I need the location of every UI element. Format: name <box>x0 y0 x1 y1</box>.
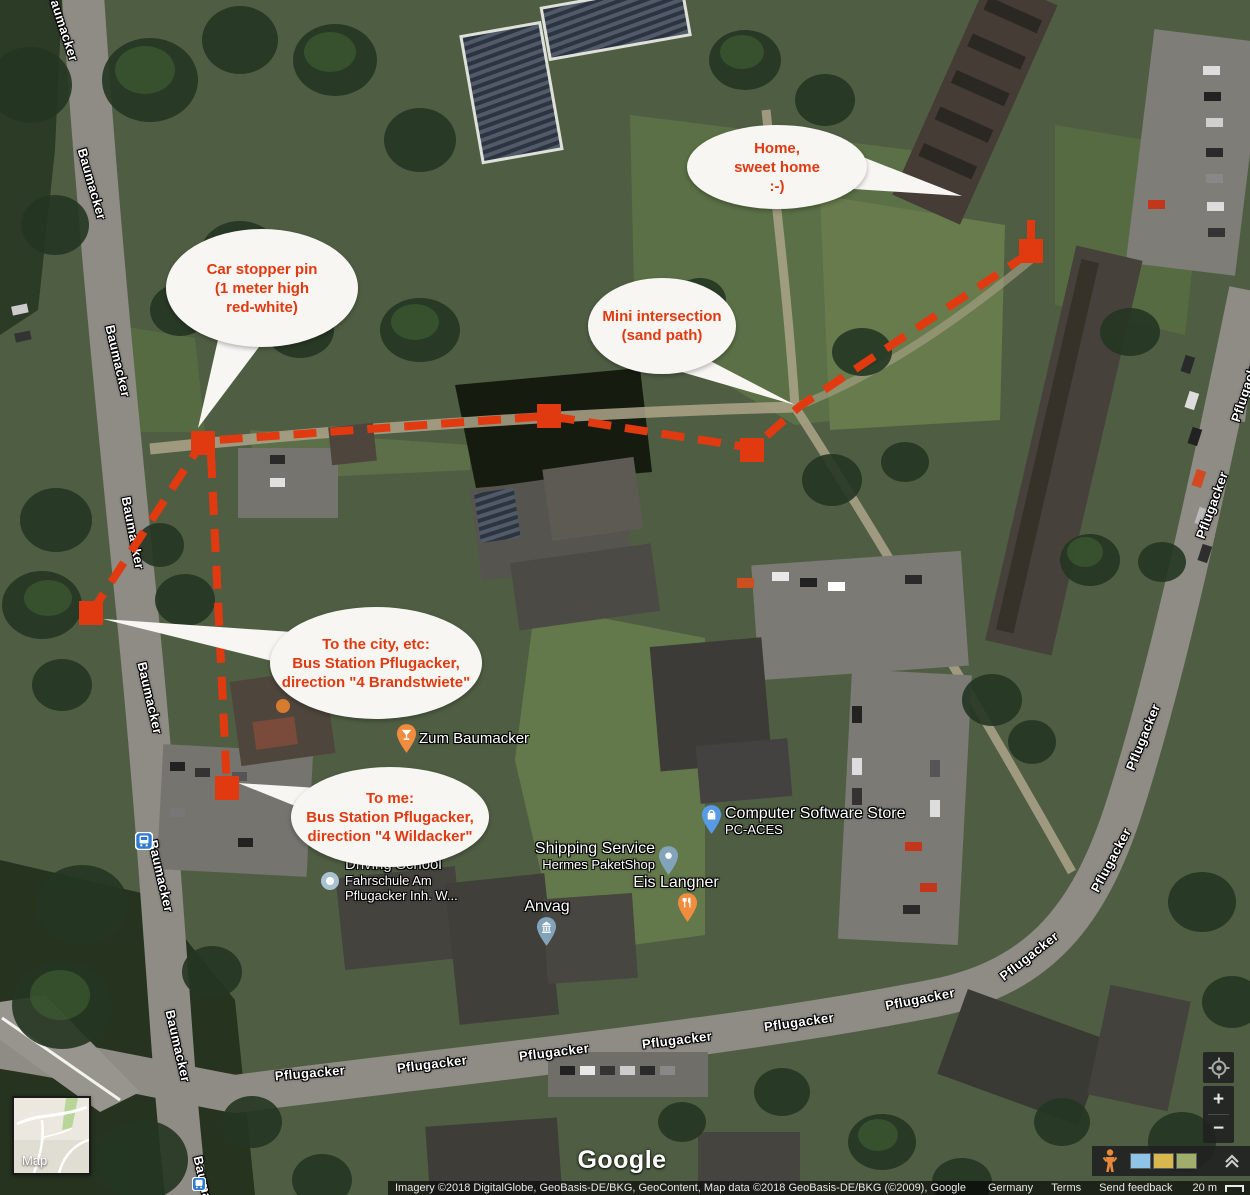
imagery-thumbnail[interactable] <box>1153 1153 1174 1169</box>
google-logo[interactable]: Google <box>572 1146 672 1175</box>
link-germany[interactable]: Germany <box>988 1182 1033 1194</box>
poi-label-computer-store[interactable]: Computer Software Store PC-ACES <box>725 805 906 837</box>
pegman-icon[interactable] <box>1102 1149 1118 1173</box>
poi-label-anvag[interactable]: Anvag <box>487 898 607 915</box>
collapse-chevron-icon[interactable] <box>1224 1153 1240 1169</box>
imagery-bar <box>1092 1146 1250 1176</box>
zoom-controls: + − <box>1203 1086 1234 1143</box>
scale-bar <box>1225 1185 1244 1192</box>
annotation-bubble-mini-intersection: Mini intersection (sand path) <box>588 278 736 374</box>
poi-dot-icon[interactable] <box>320 871 340 891</box>
attribution-text: Imagery ©2018 DigitalGlobe, GeoBasis-DE/… <box>395 1182 966 1194</box>
parcel-pin-icon[interactable] <box>658 846 679 875</box>
map-toggle-label: Map <box>22 1153 47 1168</box>
imagery-thumbnail[interactable] <box>1176 1153 1197 1169</box>
scale-label: 20 m <box>1193 1182 1217 1194</box>
bar-pin-icon[interactable] <box>396 724 417 753</box>
zoom-out-button[interactable]: − <box>1203 1115 1234 1143</box>
zoom-in-button[interactable]: + <box>1203 1086 1234 1114</box>
attribution-bar: Imagery ©2018 DigitalGlobe, GeoBasis-DE/… <box>388 1181 1250 1195</box>
my-location-button[interactable] <box>1203 1052 1234 1083</box>
map-mode-toggle[interactable]: Map <box>12 1096 91 1175</box>
bus-stop-icon[interactable] <box>135 832 153 850</box>
link-terms[interactable]: Terms <box>1051 1182 1081 1194</box>
link-send-feedback[interactable]: Send feedback <box>1099 1182 1172 1194</box>
annotation-bubble-to-me: To me: Bus Station Pflugacker, direction… <box>291 767 489 867</box>
poi-label-eis-langner[interactable]: Eis Langner <box>606 874 746 891</box>
annotation-bubble-home: Home, sweet home :-) <box>687 125 867 209</box>
poi-label-zum-baumacker[interactable]: Zum Baumacker <box>419 730 529 747</box>
annotation-bubble-to-city: To the city, etc: Bus Station Pflugacker… <box>270 607 482 719</box>
bank-pin-icon[interactable] <box>536 917 557 946</box>
map-viewport[interactable]: Baumacker Baumacker Baumacker Baumacker … <box>0 0 1250 1195</box>
restaurant-pin-icon[interactable] <box>677 893 698 922</box>
shopping-pin-icon[interactable] <box>701 805 722 834</box>
poi-label-shipping-service[interactable]: Shipping Service Hermes PaketShop <box>505 840 655 872</box>
imagery-thumbnail[interactable] <box>1130 1153 1151 1169</box>
annotation-bubble-car-stopper: Car stopper pin (1 meter high red-white) <box>166 229 358 347</box>
bus-stop-icon[interactable] <box>192 1177 206 1191</box>
my-location-icon <box>1208 1057 1230 1079</box>
satellite-imagery[interactable] <box>0 0 1250 1195</box>
